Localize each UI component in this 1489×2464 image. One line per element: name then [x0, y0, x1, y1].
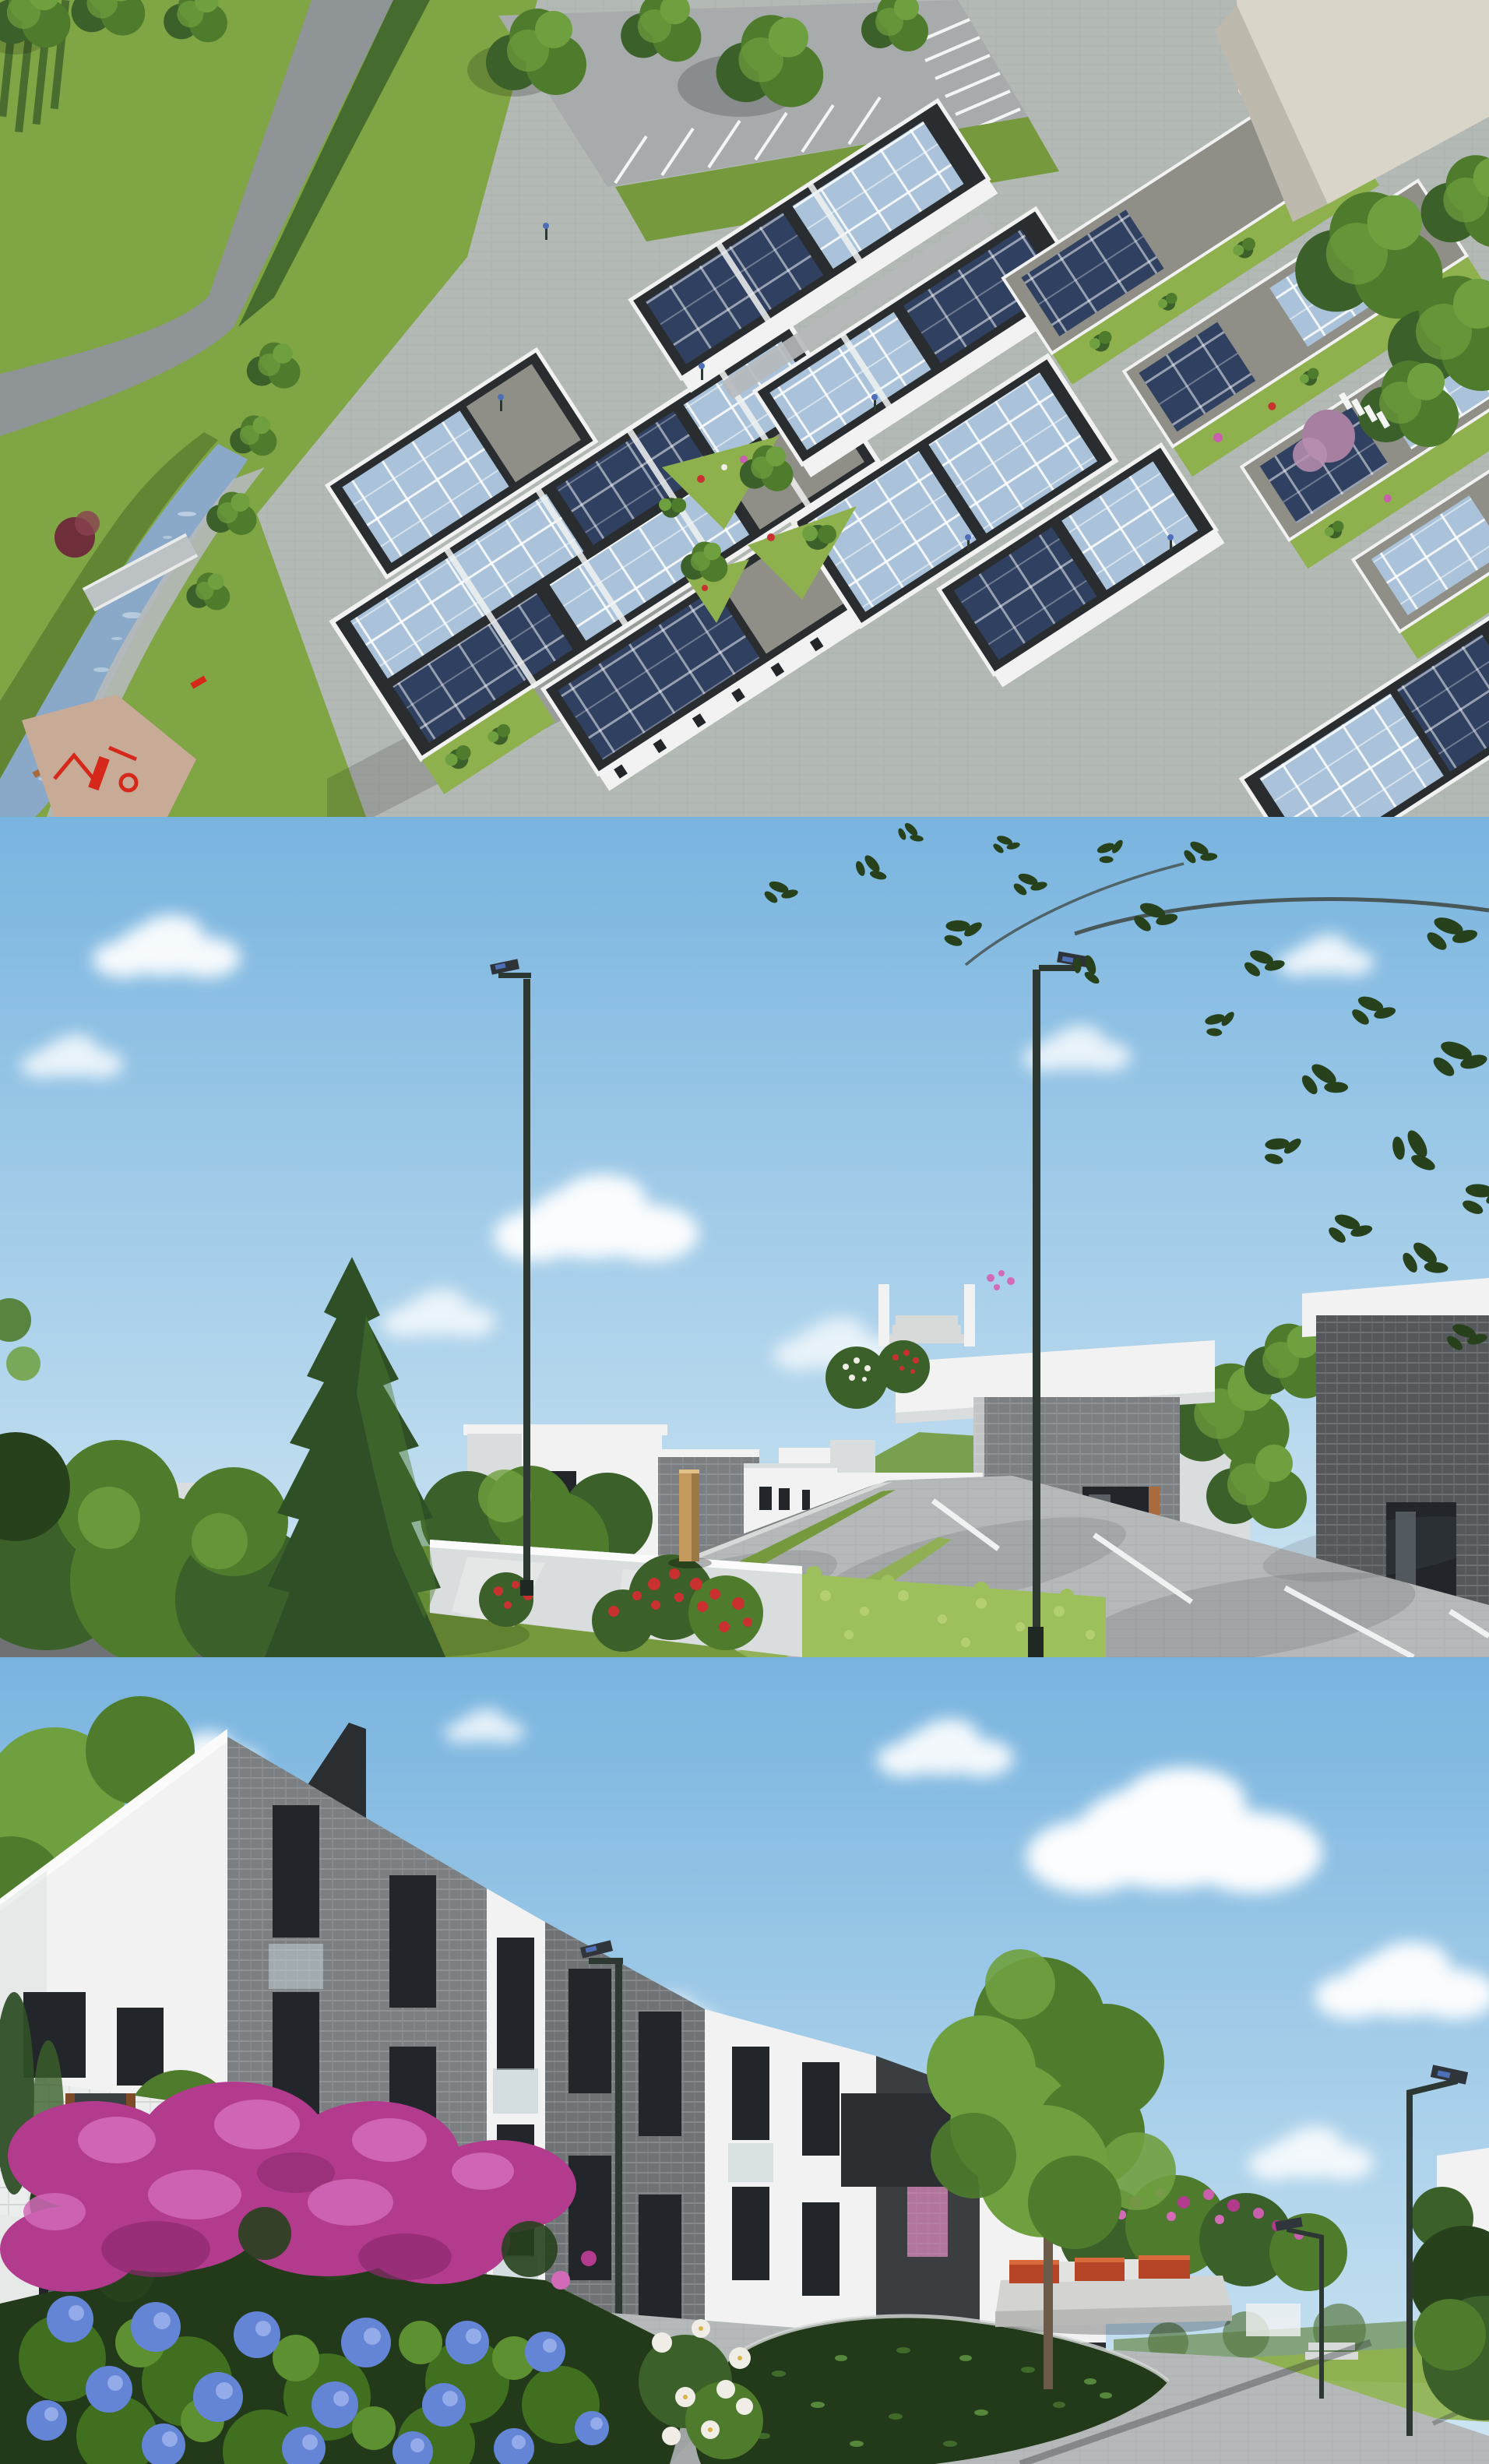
aerial-view-scene: Aerial masterplan view [0, 0, 1489, 817]
courtyard-view-panel: Courtyard walkway view [0, 1657, 1489, 2464]
aerial-view-panel: Aerial masterplan view [0, 0, 1489, 817]
red-leaf-tree-top [75, 511, 100, 536]
distant-structure [1246, 2304, 1301, 2336]
courtyard-view-scene: Courtyard walkway view [0, 1657, 1489, 2464]
street-view-scene: Street-level lane view [0, 817, 1489, 1657]
street-view-panel: Street-level lane view [0, 817, 1489, 1657]
pink-tree-top [1293, 438, 1327, 472]
render-collage: Aerial masterplan view [0, 0, 1489, 2464]
